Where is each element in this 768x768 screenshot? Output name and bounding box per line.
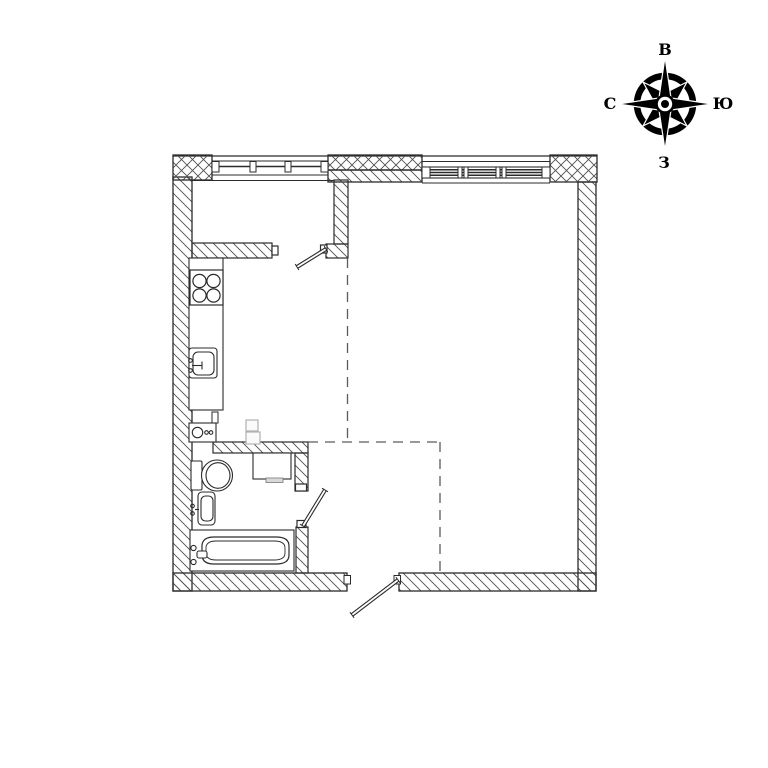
bottom-wall-left: [173, 573, 347, 591]
top-right-pier: [550, 155, 597, 182]
boiler-icon: [189, 423, 216, 442]
compass-hub-dot: [661, 100, 669, 108]
washing-machine-icon: [253, 453, 291, 483]
bathroom-door-stop-upper: [296, 484, 307, 491]
kitchen-sink-icon: [189, 348, 217, 378]
compass-rose: В Ю З С: [604, 40, 734, 172]
window-end-cap: [321, 162, 328, 173]
top-left-pier: [173, 155, 212, 180]
partition-stub: [212, 412, 218, 423]
entry-door-stop-block: [344, 576, 351, 585]
zone-boundary-dashed-line: [308, 258, 440, 573]
window-end-cap: [542, 167, 550, 178]
bathroom-door: [300, 488, 328, 528]
compass-label-bottom: З: [658, 153, 670, 172]
bathroom-partition-east-lower: [296, 527, 308, 573]
kitchen-partition-vertical: [334, 180, 348, 244]
kitchen-partition-horizontal: [192, 243, 272, 258]
window-mullion: [250, 162, 256, 173]
window-mullion: [464, 167, 468, 178]
window-end-cap: [422, 167, 430, 178]
kitchen-door-jamb: [326, 244, 348, 258]
duct-icon: [246, 420, 260, 444]
bathroom-fixtures: [190, 453, 294, 571]
bathtub-icon: [190, 530, 294, 571]
partition-end-cap: [272, 246, 278, 255]
living-room-window: [422, 162, 550, 184]
toilet-icon: [191, 460, 233, 491]
compass-label-top: В: [658, 40, 672, 59]
entry-door: [344, 576, 401, 618]
kitchen-window: [192, 161, 334, 181]
bottom-wall-right: [399, 573, 596, 591]
compass-label-right: Ю: [713, 94, 734, 113]
top-middle-pier-upper: [328, 155, 422, 170]
kitchen-fixtures: [189, 258, 260, 444]
window-mullion: [502, 167, 506, 178]
floor-plan-drawing: В Ю З С: [0, 0, 768, 768]
washbasin-icon: [191, 492, 215, 525]
window-end-cap: [212, 162, 219, 173]
window-mullion: [458, 167, 462, 178]
outer-walls: [173, 155, 597, 591]
window-mullion: [496, 167, 500, 178]
floor-plan-page: В Ю З С: [0, 0, 768, 768]
stove-icon: [190, 270, 223, 305]
kitchen-door: [295, 246, 328, 270]
right-wall: [578, 182, 596, 591]
compass-label-left: С: [604, 94, 617, 113]
window-mullion: [285, 162, 291, 173]
